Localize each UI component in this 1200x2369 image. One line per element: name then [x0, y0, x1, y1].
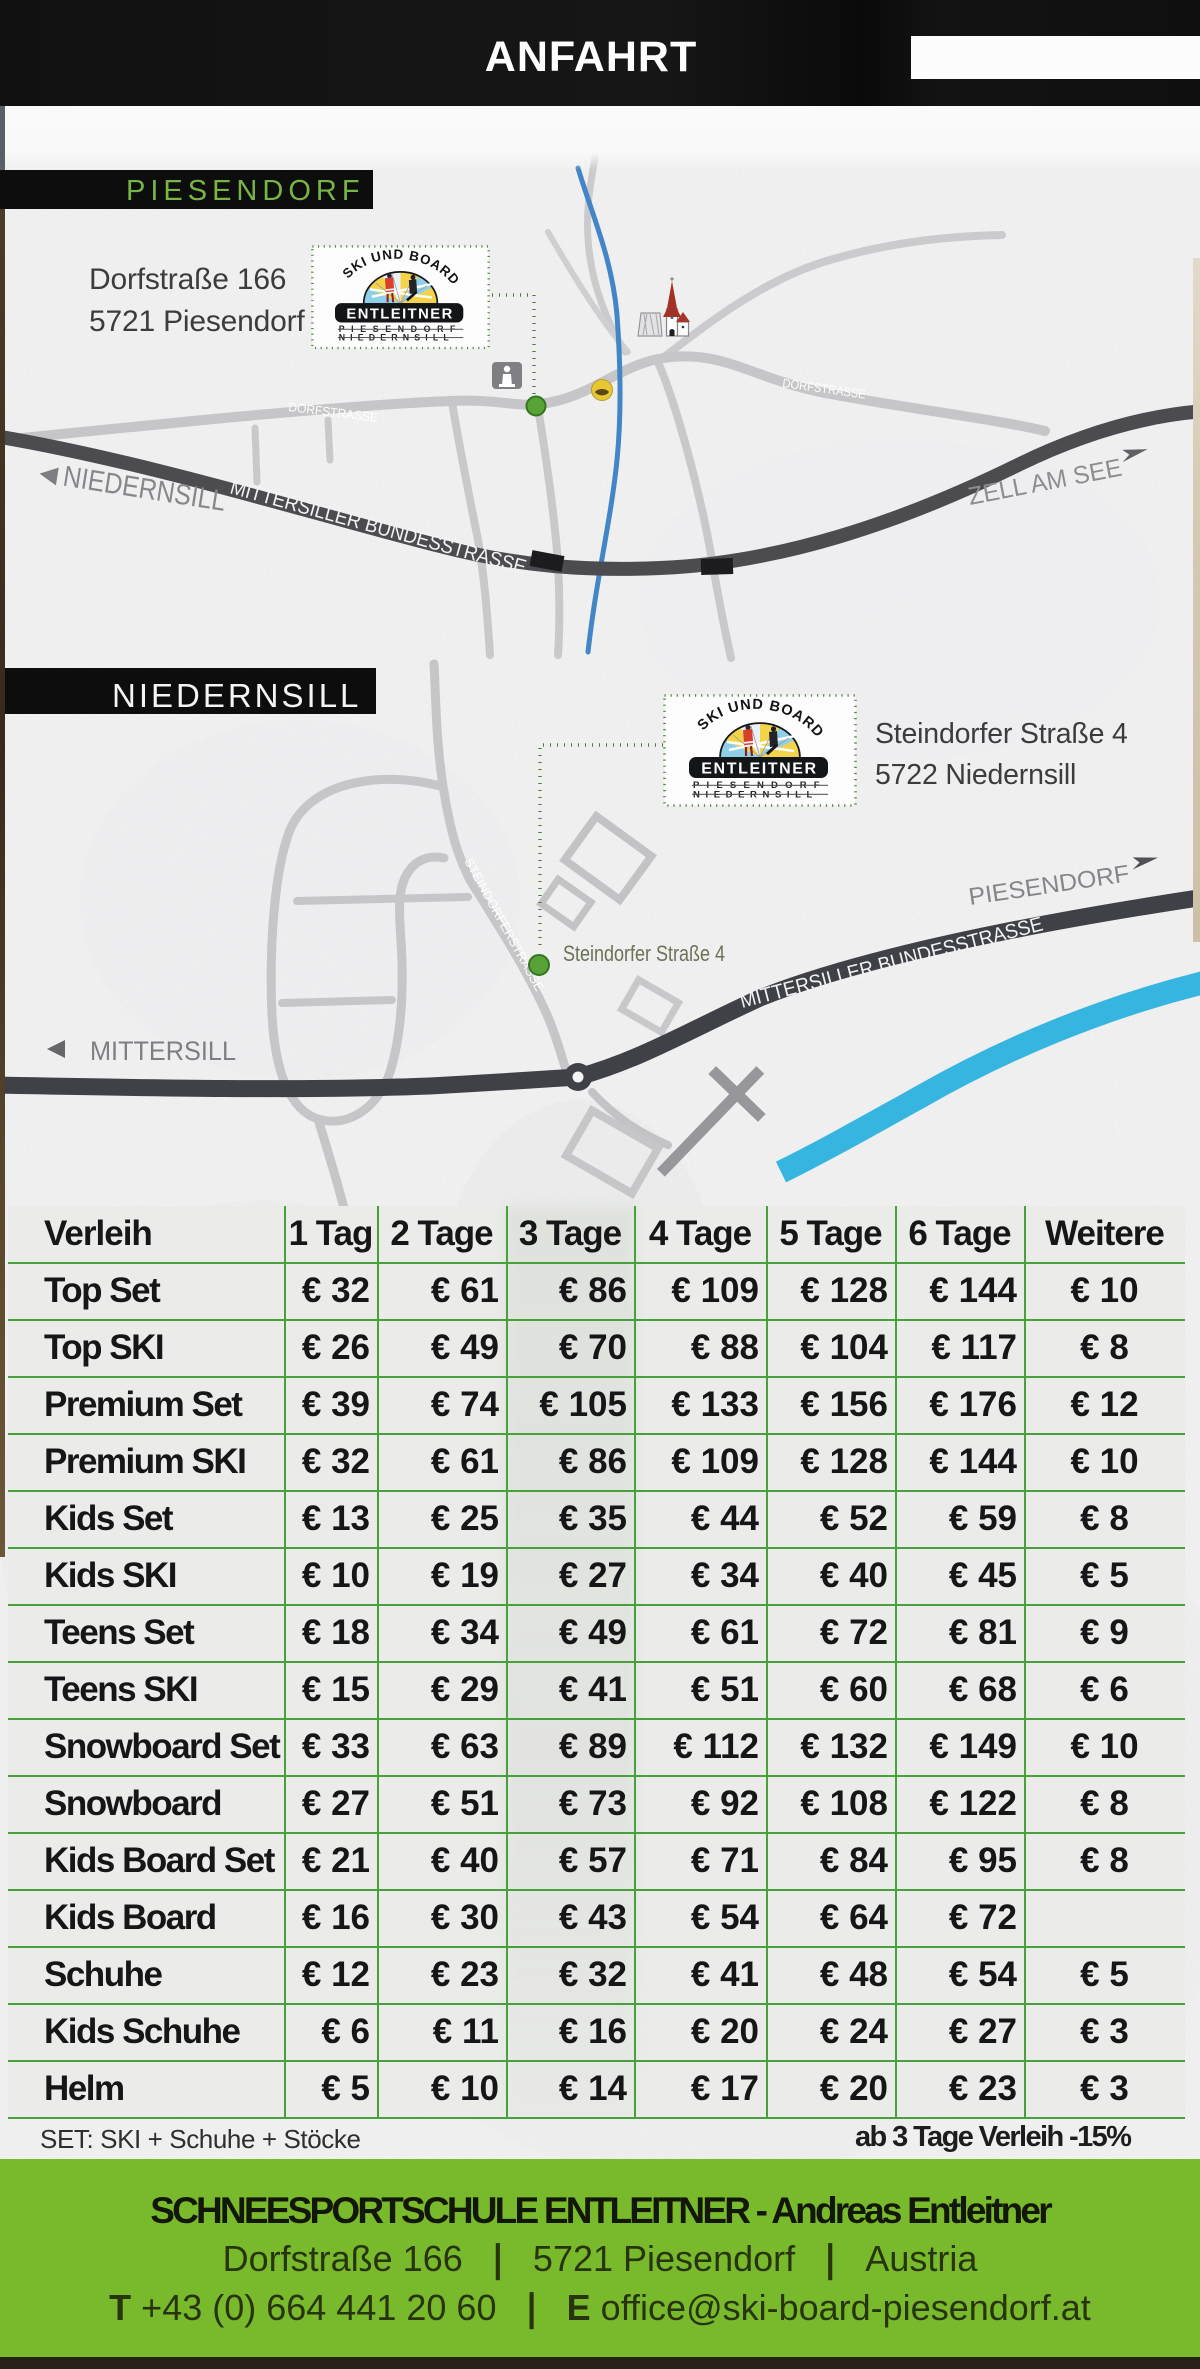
svg-text:Steindorfer Straße 4: Steindorfer Straße 4 [563, 941, 725, 966]
svg-text:MITTERSILL: MITTERSILL [90, 1036, 236, 1066]
